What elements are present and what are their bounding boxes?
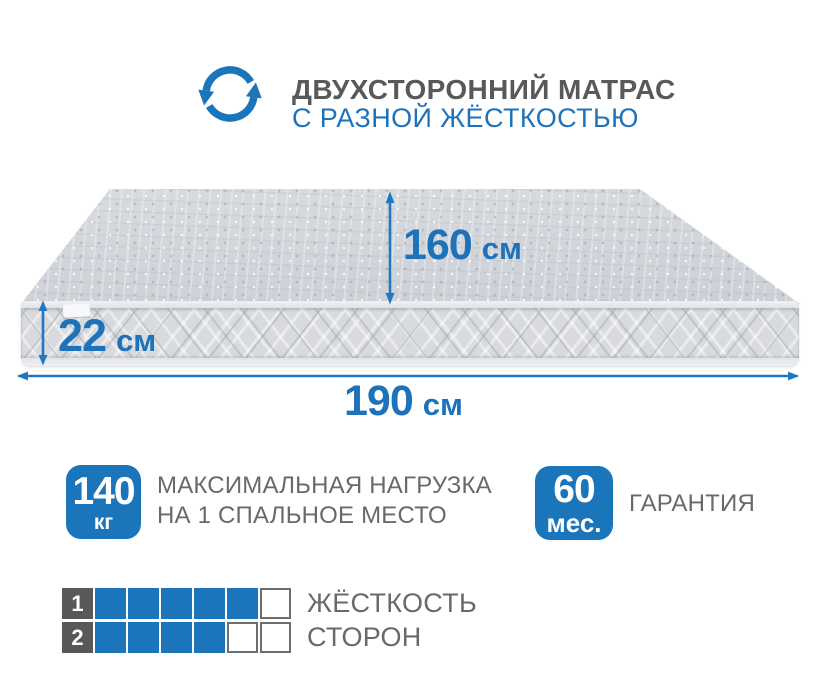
- warranty-unit: мес.: [535, 510, 613, 536]
- rating-row-label: ЖЁСТКОСТЬ: [307, 588, 477, 619]
- warranty-badge: 60 мес.: [535, 466, 613, 540]
- max-load-badge: 140 кг: [66, 465, 141, 539]
- rating-square-filled: [95, 622, 126, 653]
- max-load-description-line2: НА 1 СПАЛЬНОЕ МЕСТО: [157, 501, 492, 531]
- mattress-edge-tape-bottom: [21, 358, 799, 366]
- rating-square-filled: [128, 588, 159, 619]
- max-load-unit: кг: [66, 512, 141, 533]
- rating-squares: [95, 588, 291, 619]
- rating-square-filled: [128, 622, 159, 653]
- rating-row-label: СТОРОН: [307, 622, 422, 653]
- rating-square-empty: [260, 588, 291, 619]
- rating-square-filled: [194, 588, 225, 619]
- mattress-edge-tape-top: [21, 301, 799, 308]
- height-dimension-arrow: [34, 300, 52, 366]
- rating-row-number: 2: [62, 622, 93, 653]
- width-value: 160: [403, 224, 472, 267]
- page-subtitle: С РАЗНОЙ ЖЁСТКОСТЬЮ: [292, 103, 639, 134]
- height-dimension-label: 22 см: [58, 313, 156, 358]
- rating-square-filled: [161, 622, 192, 653]
- rating-square-empty: [260, 622, 291, 653]
- rating-square-filled: [227, 588, 258, 619]
- rotate-arrows-icon: [197, 61, 263, 127]
- warranty-value: 60: [535, 470, 613, 509]
- rating-row-sides: 2 СТОРОН: [62, 622, 477, 653]
- length-dimension-label: 190 см: [344, 380, 463, 423]
- ratings-block: 1 ЖЁСТКОСТЬ 2 СТОРОН: [62, 588, 477, 656]
- mattress-infographic: ДВУХСТОРОННИЙ МАТРАС С РАЗНОЙ ЖЁСТКОСТЬЮ…: [0, 0, 816, 700]
- rating-square-filled: [95, 588, 126, 619]
- width-dimension-arrow: [381, 191, 399, 305]
- length-unit: см: [423, 389, 463, 420]
- height-unit: см: [116, 325, 156, 356]
- rating-squares: [95, 622, 291, 653]
- max-load-description-line1: МАКСИМАЛЬНАЯ НАГРУЗКА: [157, 471, 492, 501]
- max-load-description: МАКСИМАЛЬНАЯ НАГРУЗКА НА 1 СПАЛЬНОЕ МЕСТ…: [157, 471, 492, 531]
- rating-row-number: 1: [62, 588, 93, 619]
- rating-square-empty: [227, 622, 258, 653]
- width-dimension-label: 160 см: [403, 224, 522, 267]
- page-title: ДВУХСТОРОННИЙ МАТРАС: [292, 74, 676, 106]
- height-value: 22: [58, 313, 106, 358]
- rating-square-filled: [161, 588, 192, 619]
- rating-square-filled: [194, 622, 225, 653]
- warranty-label: ГАРАНТИЯ: [629, 489, 755, 519]
- length-value: 190: [344, 380, 413, 423]
- width-unit: см: [482, 233, 522, 264]
- max-load-value: 140: [66, 472, 141, 511]
- rating-row-hardness: 1 ЖЁСТКОСТЬ: [62, 588, 477, 619]
